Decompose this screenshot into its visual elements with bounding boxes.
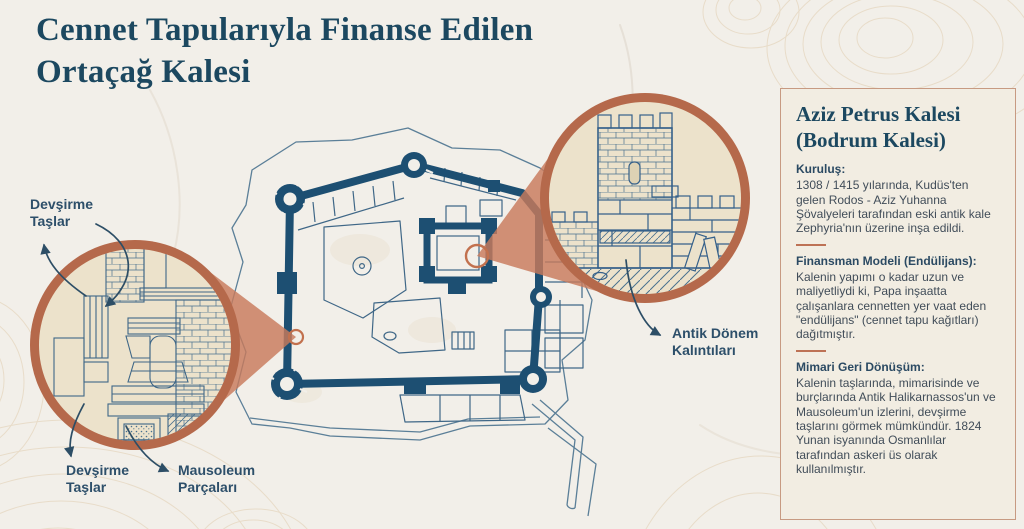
section-heading: Mimari Geri Dönüşüm:: [796, 360, 1000, 374]
section-divider: [796, 350, 826, 352]
label-devsirme-taslar-bottom: Devşirme Taşlar: [66, 462, 158, 496]
label-antik-donem-kalintilari: Antik Dönem Kalıntıları: [672, 325, 794, 359]
section-body: Kalenin taşlarında, mimarisinde ve burçl…: [796, 376, 1000, 477]
info-panel: Aziz Petrus Kalesi (Bodrum Kalesi) Kurul…: [780, 88, 1016, 520]
section-heading: Finansman Modeli (Endülijans):: [796, 254, 1000, 268]
section-body: Kalenin yapımı o kadar uzun ve maliyetli…: [796, 270, 1000, 342]
panel-title: Aziz Petrus Kalesi (Bodrum Kalesi): [796, 102, 1000, 153]
infographic-canvas: Cennet Tapularıyla Finanse Edilen Ortaça…: [0, 0, 1024, 529]
panel-section-kurulus: Kuruluş: 1308 / 1415 yılarında, Kudüs'te…: [796, 162, 1000, 236]
section-divider: [796, 244, 826, 246]
section-heading: Kuruluş:: [796, 162, 1000, 176]
panel-section-finansman: Finansman Modeli (Endülijans): Kalenin y…: [796, 254, 1000, 342]
castle-walls: [277, 165, 539, 394]
section-body: 1308 / 1415 yılarında, Kudüs'ten gelen R…: [796, 178, 1000, 236]
label-mausoleum-parcalari: Mausoleum Parçaları: [178, 462, 290, 496]
label-devsirme-taslar-top: Devşirme Taşlar: [30, 196, 122, 230]
panel-section-mimari: Mimari Geri Dönüşüm: Kalenin taşlarında,…: [796, 360, 1000, 477]
page-title: Cennet Tapularıyla Finanse Edilen Ortaça…: [36, 10, 636, 93]
